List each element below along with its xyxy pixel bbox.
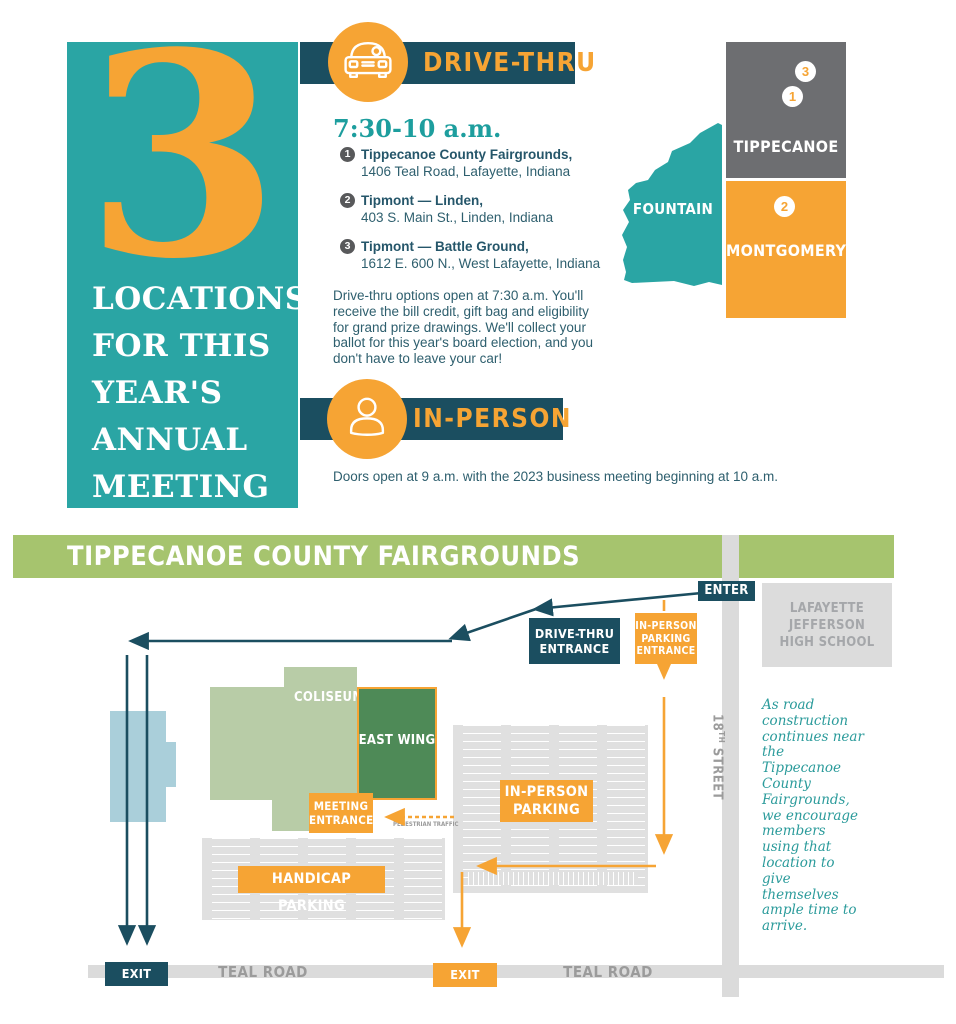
location-address: 1406 Teal Road, Lafayette, Indiana [361, 164, 570, 179]
grandstand-building-annex [166, 742, 176, 787]
drive-thru-banner-label: DRIVE-THRU [423, 42, 597, 84]
road-label-teal-road-east: TEAL ROAD [548, 963, 668, 981]
school-label-line: HIGH SCHOOL [762, 634, 892, 651]
in-person-icon-circle [327, 379, 407, 459]
school-label-line: LAFAYETTE [762, 600, 892, 617]
headline-line: LOCATIONS [92, 276, 308, 323]
school-label-line: JEFFERSON [762, 617, 892, 634]
list-item-location-1: 1Tippecanoe County Fairgrounds,1406 Teal… [340, 146, 620, 180]
location-address: 1612 E. 600 N., West Lafayette, Indiana [361, 256, 600, 271]
enter-tag: ENTER [698, 581, 755, 601]
high-school-building: LAFAYETTE JEFFERSON HIGH SCHOOL [762, 583, 892, 667]
infographic-page: 3 LOCATIONS FOR THIS YEAR'S ANNUAL MEETI… [0, 0, 956, 1024]
location-name: Tippecanoe County Fairgrounds, [361, 147, 572, 162]
location-name: Tipmont — Linden, [361, 193, 483, 208]
drive-thru-icon-circle [328, 22, 408, 102]
drive-thru-time: 7:30-10 a.m. [333, 114, 501, 143]
coliseum-building-north-wing [284, 667, 357, 687]
county-box-tippecanoe [726, 42, 846, 178]
road-label-teal-road-west: TEAL ROAD [203, 963, 323, 981]
car-icon [340, 32, 396, 93]
street-number: 18 [710, 714, 725, 731]
street-ordinal: TH [717, 731, 726, 743]
road-label-18th-street: 18TH STREET [710, 714, 726, 804]
map-marker-1: 1 [782, 86, 803, 107]
number-badge: 2 [340, 193, 355, 208]
exit-only-tag-drive-thru: EXIT ONLY [105, 962, 168, 986]
headline: LOCATIONS FOR THIS YEAR'S ANNUAL MEETING [92, 276, 308, 511]
street-word: STREET [710, 743, 725, 800]
list-item-location-2: 2Tipmont — Linden,403 S. Main St., Linde… [340, 192, 620, 226]
headline-line: MEETING [92, 464, 308, 511]
pedestrian-traffic-label: PEDESTRIAN TRAFFIC [393, 821, 453, 828]
map-marker-3: 3 [795, 61, 816, 82]
coliseum-label: COLISEUM [294, 690, 364, 705]
in-person-note: Doors open at 9 a.m. with the 2023 busin… [333, 469, 793, 485]
grandstand-building [110, 711, 166, 822]
map-title: TIPPECANOE COUNTY FAIRGROUNDS [67, 535, 580, 578]
county-label-tippecanoe: TIPPECANOE [726, 137, 846, 156]
map-marker-2: 2 [774, 196, 795, 217]
list-item-location-3: 3Tipmont — Battle Ground,1612 E. 600 N.,… [340, 238, 620, 272]
person-icon [339, 389, 395, 450]
location-address: 403 S. Main St., Linden, Indiana [361, 210, 553, 225]
parking-stall-strip [468, 872, 638, 885]
headline-line: ANNUAL [92, 417, 308, 464]
headline-line: YEAR'S [92, 370, 308, 417]
coliseum-building-south-wing [272, 800, 310, 831]
east-wing-label: EAST WING [357, 733, 437, 748]
headline-line: FOR THIS [92, 323, 308, 370]
meeting-entrance-tag: MEETING ENTRANCE [309, 793, 373, 833]
construction-note: As road construction continues near the … [762, 698, 866, 935]
county-label-montgomery: MONTGOMERY [726, 241, 846, 260]
drive-thru-note: Drive-thru options open at 7:30 a.m. You… [333, 288, 605, 367]
in-person-parking-entrance-tag: IN-PERSON PARKING ENTRANCE [635, 613, 697, 664]
exit-only-tag-in-person: EXIT ONLY [433, 963, 497, 987]
county-label-fountain: FOUNTAIN [629, 200, 717, 218]
handicap-parking-tag: HANDICAP PARKING [238, 866, 385, 893]
big-number-3: 3 [67, 52, 298, 262]
drive-thru-entrance-tag: DRIVE-THRU ENTRANCE [529, 618, 620, 664]
number-badge: 3 [340, 239, 355, 254]
in-person-banner-label: IN-PERSON [413, 398, 572, 440]
in-person-parking-tag: IN-PERSON PARKING [500, 780, 593, 822]
location-name: Tipmont — Battle Ground, [361, 239, 529, 254]
number-badge: 1 [340, 147, 355, 162]
